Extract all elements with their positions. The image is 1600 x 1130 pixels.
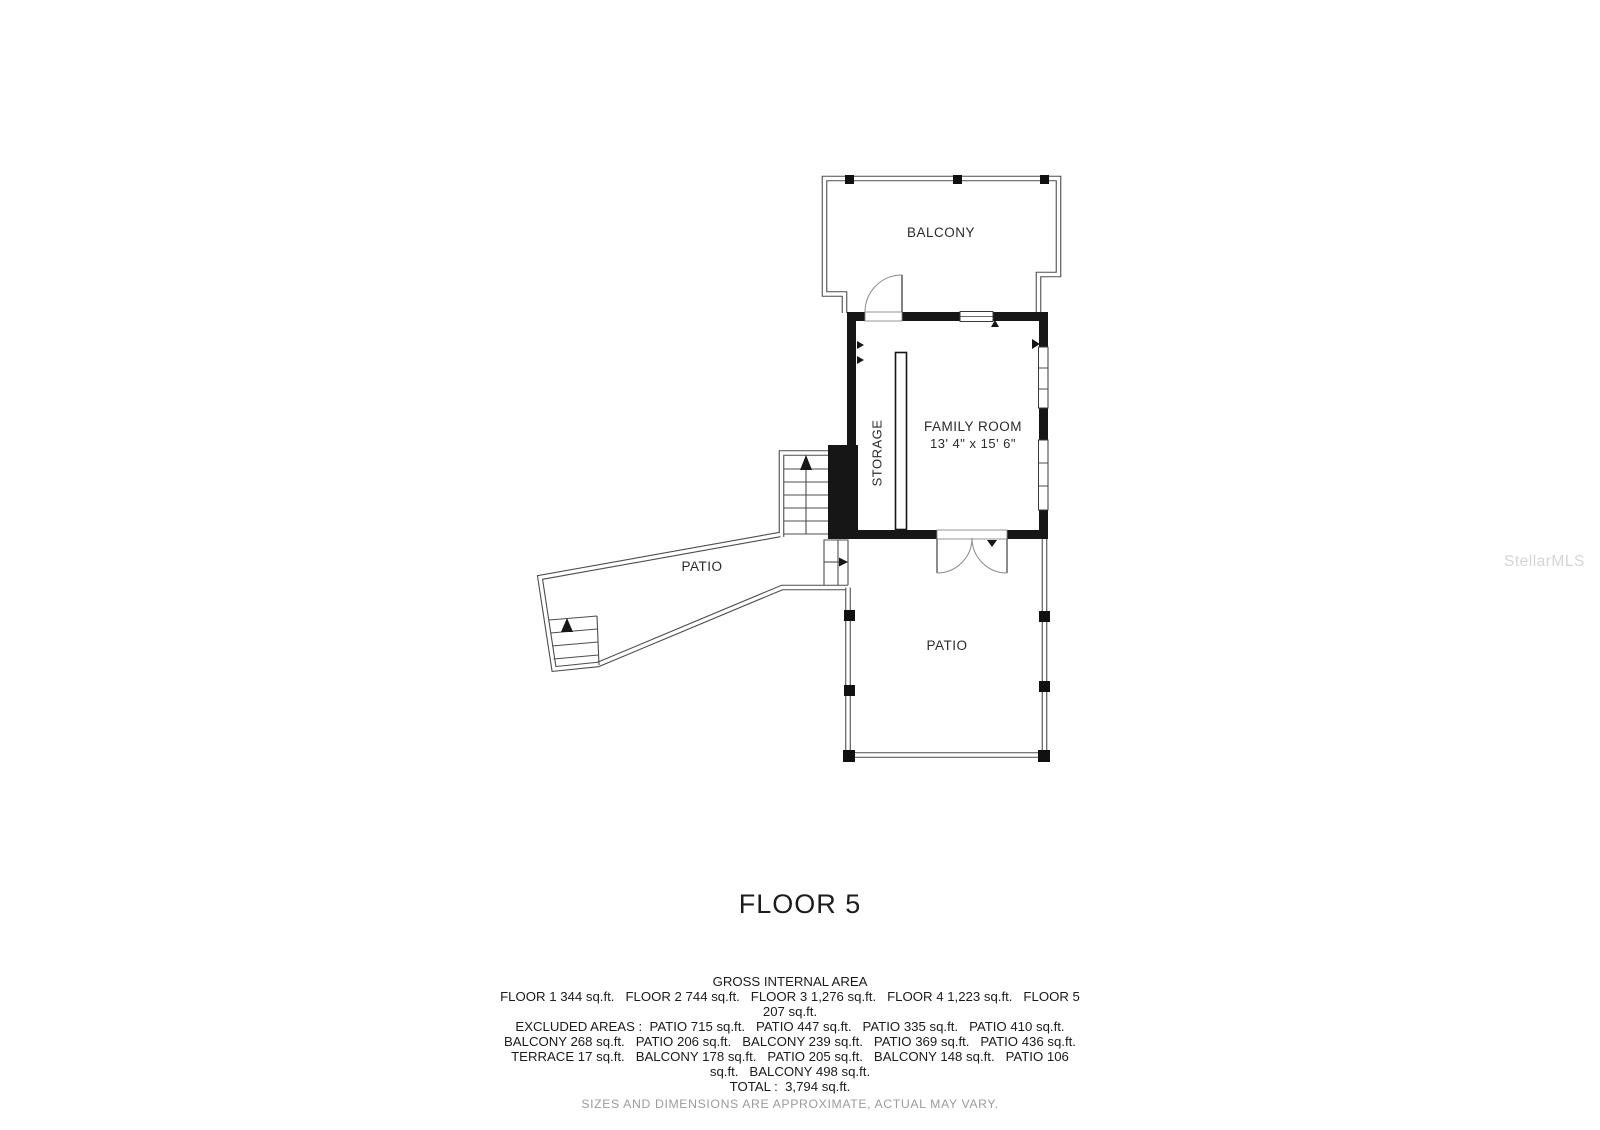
patio-posts — [843, 610, 1050, 762]
landing-arrow — [839, 558, 848, 567]
area-summary: GROSS INTERNAL AREA FLOOR 1 344 sq.ft. F… — [390, 974, 1190, 1112]
footer-line: TOTAL : 3,794 sq.ft. — [390, 1079, 1190, 1094]
balcony-door — [865, 275, 902, 321]
floor-plan-page: BALCONY STORAGE FAMILY ROOM 13' 4" x 15'… — [0, 0, 1600, 1130]
wall-marker-icon — [857, 341, 864, 349]
staircase-upper-arrow — [800, 455, 812, 470]
floor-plan-drawing: BALCONY STORAGE FAMILY ROOM 13' 4" x 15'… — [0, 0, 1600, 1130]
footer-line: sq.ft. BALCONY 498 sq.ft. — [390, 1064, 1190, 1079]
footer-line: FLOOR 1 344 sq.ft. FLOOR 2 744 sq.ft. FL… — [390, 989, 1190, 1004]
walkway-staircase-arrow — [561, 618, 573, 632]
footer-line: 207 sq.ft. — [390, 1004, 1190, 1019]
storage-partition — [896, 353, 907, 530]
floor-title: FLOOR 5 — [650, 891, 950, 918]
patio-upper-label: PATIO — [681, 559, 722, 574]
storage-label: STORAGE — [870, 420, 885, 487]
balcony-railing — [825, 179, 1059, 314]
family-room-dimensions: 13' 4" x 15' 6" — [930, 436, 1016, 451]
door-marker-icon — [987, 540, 997, 547]
balcony-label: BALCONY — [907, 225, 975, 240]
footer-line: EXCLUDED AREAS : PATIO 715 sq.ft. PATIO … — [390, 1019, 1190, 1034]
footer-disclaimer: SIZES AND DIMENSIONS ARE APPROXIMATE, AC… — [390, 1097, 1190, 1112]
balcony-window — [960, 312, 993, 322]
walkway-outline — [540, 535, 848, 670]
footer-line: TERRACE 17 sq.ft. BALCONY 178 sq.ft. PAT… — [390, 1049, 1190, 1064]
footer-heading: GROSS INTERNAL AREA — [390, 974, 1190, 989]
watermark: StellarMLS — [1504, 553, 1585, 571]
walkway-staircase — [549, 616, 599, 665]
wall-marker-icon — [857, 356, 864, 364]
french-doors — [937, 530, 1007, 573]
footer-line: BALCONY 268 sq.ft. PATIO 206 sq.ft. BALC… — [390, 1034, 1190, 1049]
patio-lower-label: PATIO — [926, 638, 967, 653]
family-room-label: FAMILY ROOM — [924, 419, 1022, 434]
